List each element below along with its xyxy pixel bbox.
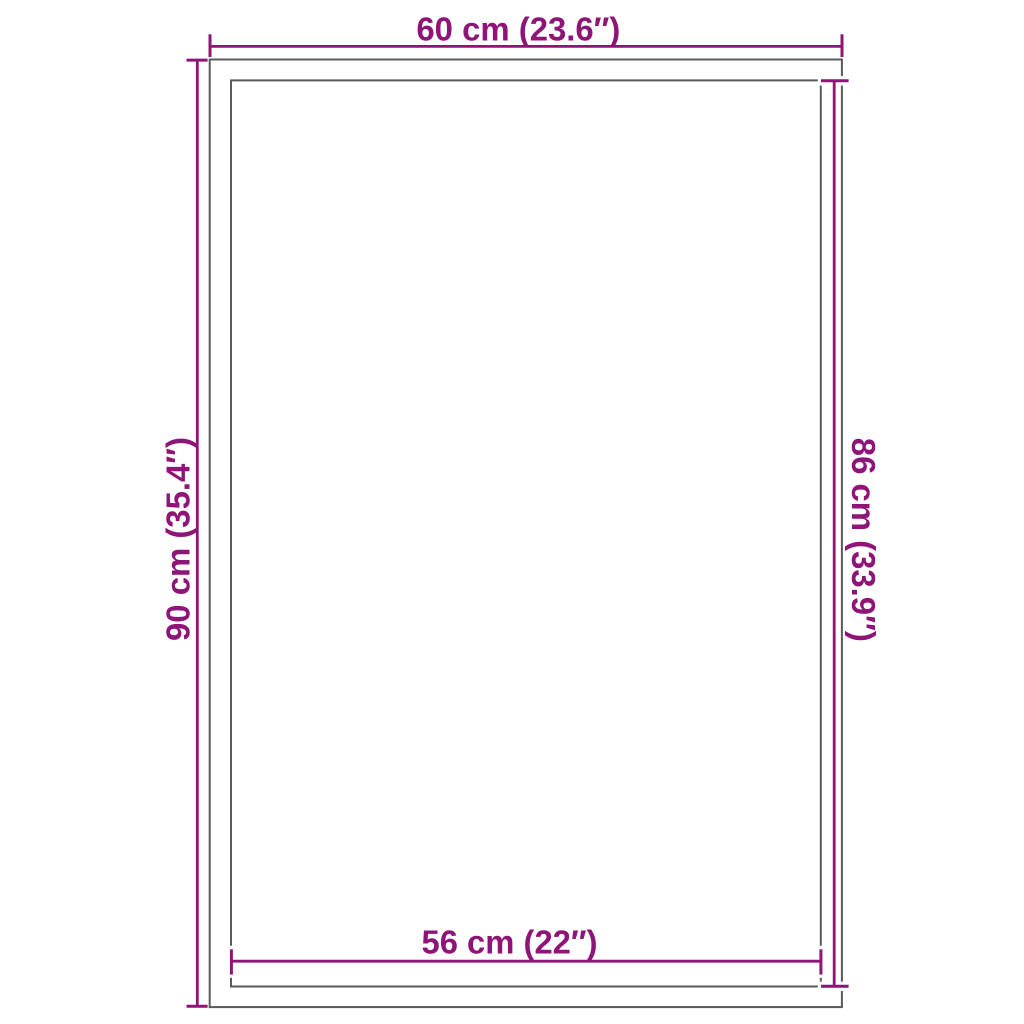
svg-text:90 cm (35.4″): 90 cm (35.4″) [161,437,198,641]
svg-text:86 cm (33.9″): 86 cm (33.9″) [844,438,881,642]
svg-text:60 cm (23.6″): 60 cm (23.6″) [416,11,620,48]
svg-text:56 cm (22″): 56 cm (22″) [422,925,598,962]
